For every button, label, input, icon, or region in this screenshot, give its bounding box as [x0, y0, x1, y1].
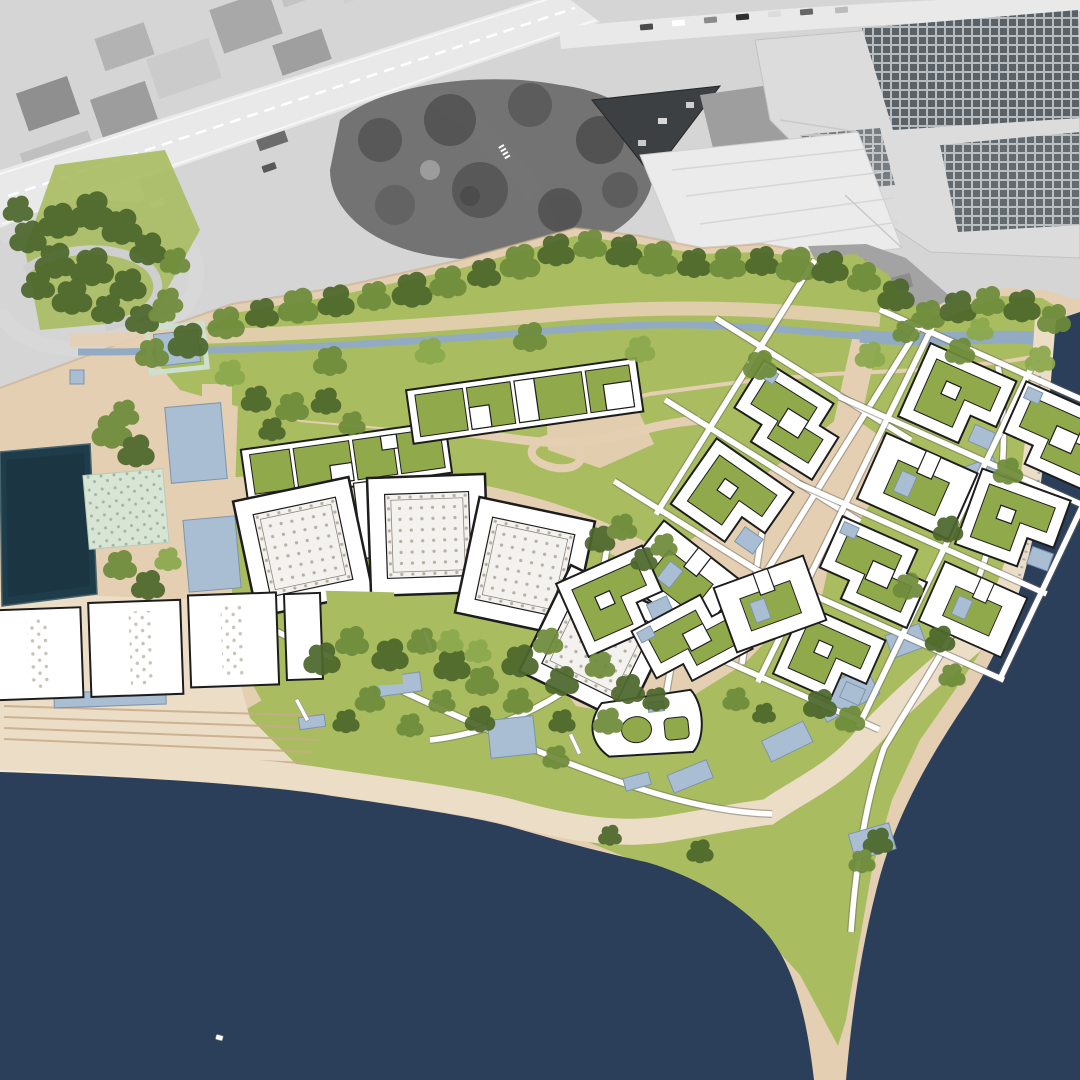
masterplan-svg	[0, 0, 1080, 1080]
marina-basin	[0, 444, 97, 606]
masterplan-map	[0, 0, 1080, 1080]
mint-plaza	[83, 469, 169, 550]
